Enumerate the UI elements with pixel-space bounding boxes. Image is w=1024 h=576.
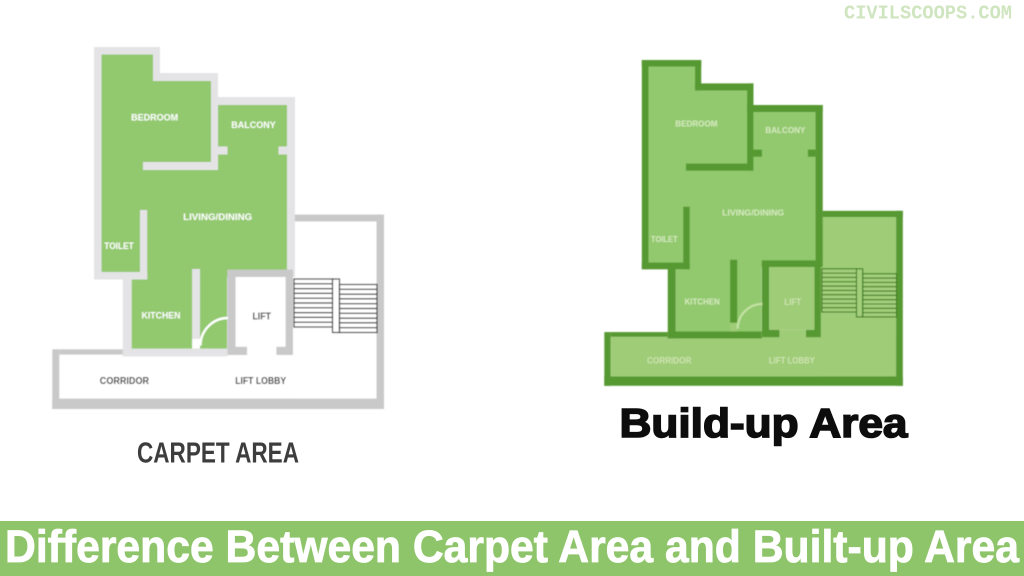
svg-text:BALCONY: BALCONY xyxy=(231,120,276,131)
svg-text:Difference Between Carpet Area: Difference Between Carpet Area and Built… xyxy=(5,521,1020,572)
svg-text:CORRIDOR: CORRIDOR xyxy=(100,375,150,387)
svg-text:TOILET: TOILET xyxy=(104,241,134,252)
svg-text:LIFT: LIFT xyxy=(784,297,801,307)
svg-text:Build-up Area: Build-up Area xyxy=(620,400,909,446)
svg-text:BEDROOM: BEDROOM xyxy=(131,113,178,124)
svg-text:BALCONY: BALCONY xyxy=(765,125,805,135)
svg-text:LIFT LOBBY: LIFT LOBBY xyxy=(235,375,286,387)
svg-text:CARPET AREA: CARPET AREA xyxy=(137,438,299,470)
svg-text:LIFT LOBBY: LIFT LOBBY xyxy=(769,355,815,366)
svg-text:LIFT: LIFT xyxy=(252,312,271,323)
svg-text:BEDROOM: BEDROOM xyxy=(675,118,717,128)
svg-text:LIVING/DINING: LIVING/DINING xyxy=(722,208,784,218)
svg-text:KITCHEN: KITCHEN xyxy=(685,296,720,306)
svg-text:TOILET: TOILET xyxy=(651,234,678,244)
svg-text:CORRIDOR: CORRIDOR xyxy=(647,355,691,366)
svg-text:KITCHEN: KITCHEN xyxy=(142,311,181,322)
svg-text:LIVING/DINING: LIVING/DINING xyxy=(183,212,252,223)
svg-text:CIVILSCOOPS.COM: CIVILSCOOPS.COM xyxy=(844,3,1012,25)
